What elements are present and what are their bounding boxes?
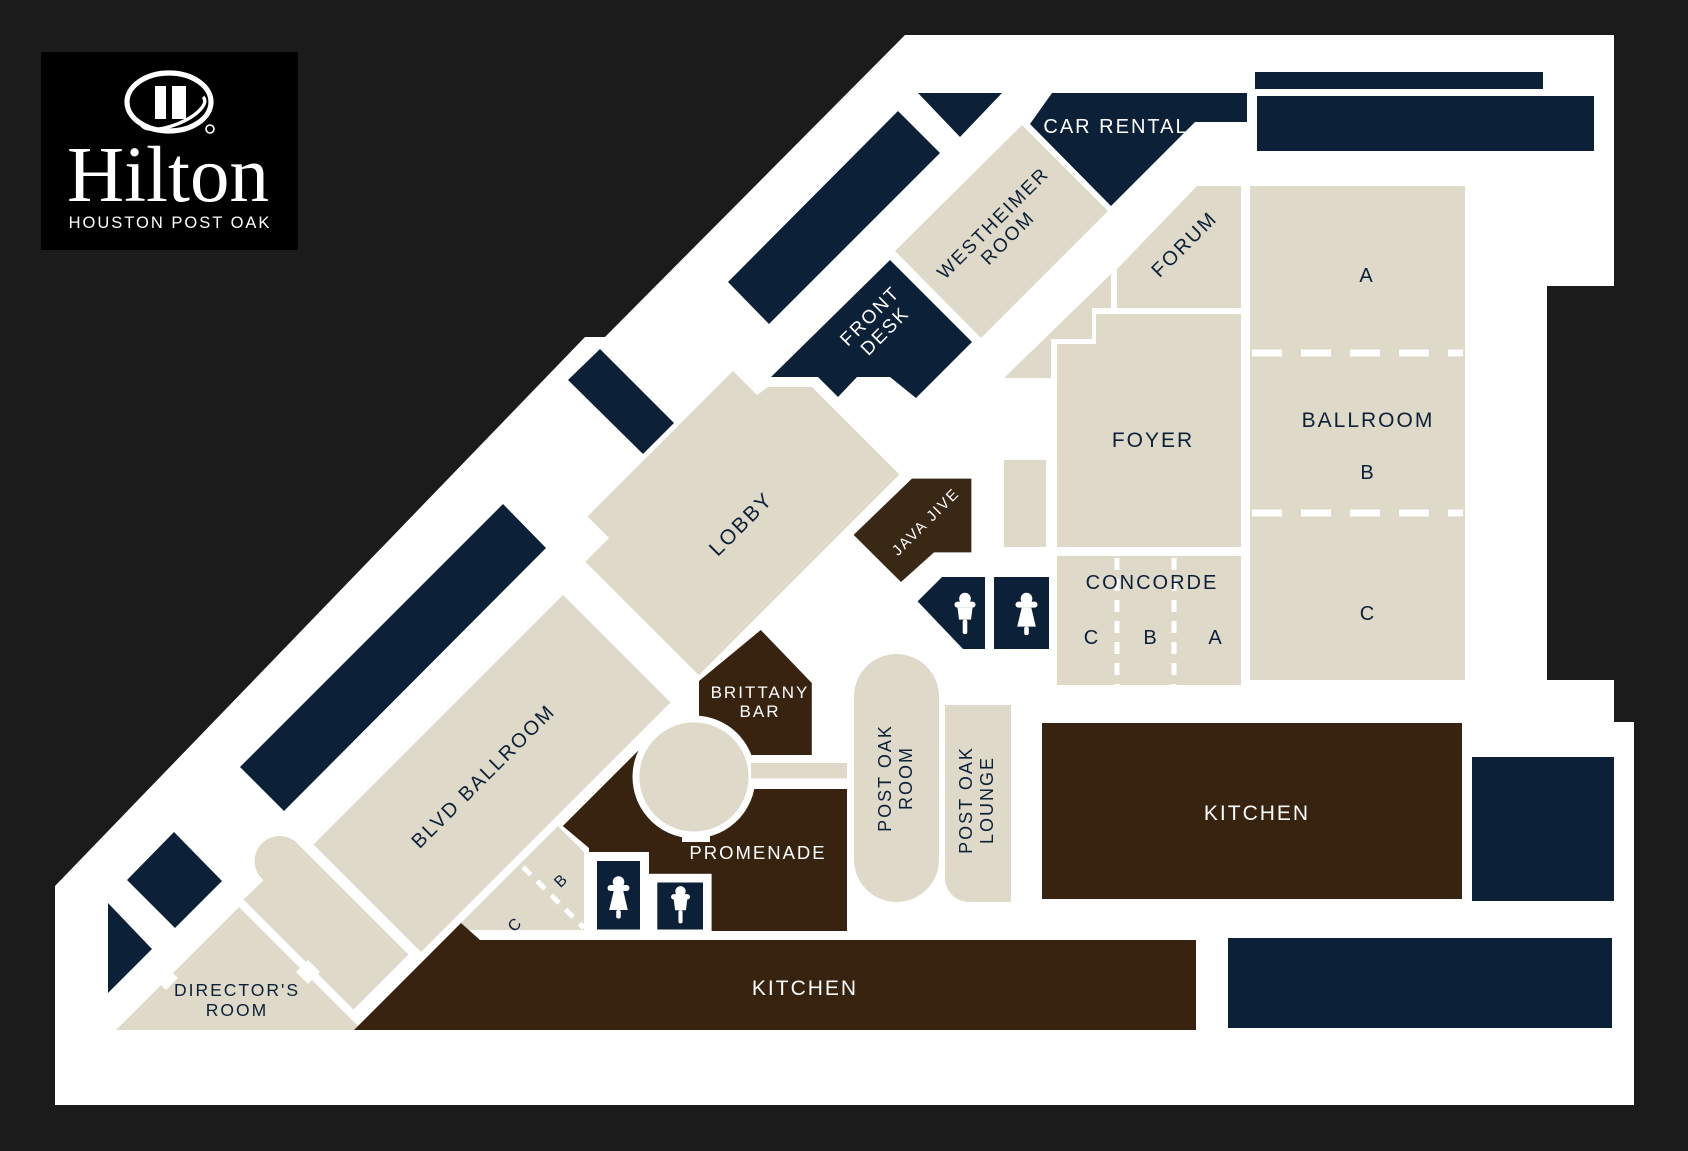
svg-text:CONCORDE: CONCORDE (1086, 572, 1219, 594)
svg-text:DIRECTOR'S: DIRECTOR'S (174, 980, 300, 1000)
svg-text:KITCHEN: KITCHEN (752, 977, 858, 1000)
svg-text:PROMENADE: PROMENADE (689, 842, 826, 863)
svg-text:Hilton: Hilton (67, 132, 269, 219)
svg-text:POST OAK: POST OAK (956, 746, 976, 854)
svg-text:A: A (1208, 627, 1223, 649)
svg-text:B: B (1360, 462, 1375, 484)
svg-text:FOYER: FOYER (1112, 429, 1194, 452)
svg-text:LOUNGE: LOUNGE (977, 756, 997, 844)
svg-text:HOUSTON POST OAK: HOUSTON POST OAK (69, 214, 272, 232)
svg-text:BAR: BAR (740, 702, 781, 721)
svg-text:BRITTANY: BRITTANY (711, 683, 810, 702)
svg-text:KITCHEN: KITCHEN (1204, 802, 1310, 825)
svg-text:A: A (1359, 265, 1374, 287)
svg-text:ROOM: ROOM (206, 1000, 268, 1020)
svg-text:BALLROOM: BALLROOM (1302, 409, 1435, 432)
svg-text:ROOM: ROOM (896, 746, 916, 810)
svg-text:C: C (1084, 627, 1100, 649)
svg-text:B: B (1143, 627, 1158, 649)
svg-text:CAR RENTAL: CAR RENTAL (1043, 116, 1188, 138)
svg-text:C: C (1360, 603, 1376, 625)
svg-text:POST OAK: POST OAK (875, 724, 895, 832)
